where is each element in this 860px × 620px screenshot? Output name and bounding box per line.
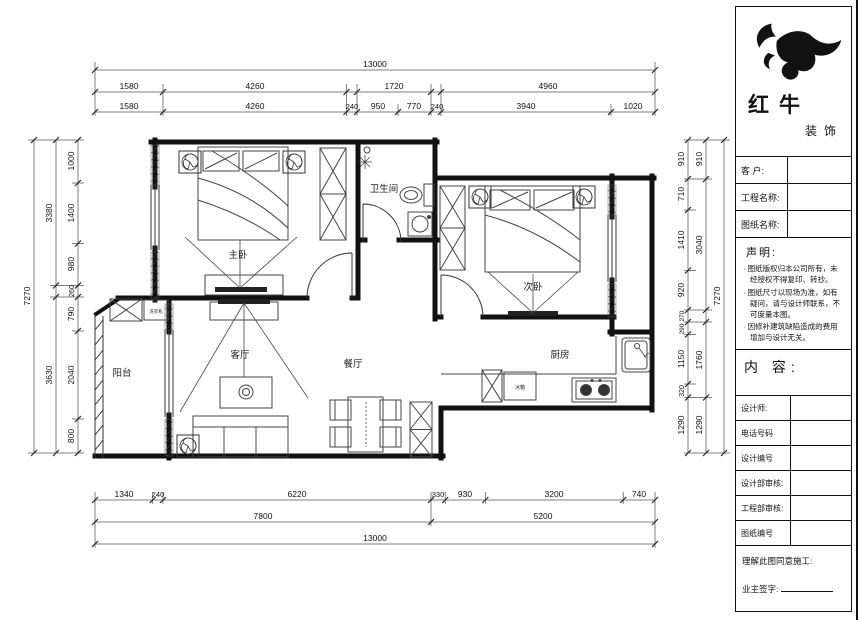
field-customer-value <box>788 157 851 183</box>
svg-text:1580: 1580 <box>120 101 139 111</box>
room-label-living: 客厅 <box>230 349 250 361</box>
sheet-right-border <box>856 0 858 620</box>
dim-top-total: 13000 <box>363 59 387 69</box>
svg-text:1580: 1580 <box>120 81 139 91</box>
field-customer-label: 客 户: <box>736 157 788 183</box>
dining-furniture <box>330 397 432 457</box>
floor-plan-canvas: 主卧 卫生间 次卧 客厅 餐厅 厨房 阳台 冰箱 洗衣机 <box>0 0 735 620</box>
statement-item: · 因修补建筑缺陷造成的费用增加与设计无关。 <box>742 322 845 344</box>
brand-logo-cell: 红牛 装饰 <box>736 7 851 157</box>
field-project-label: 工程名称: <box>736 184 788 210</box>
svg-text:3380: 3380 <box>44 203 54 222</box>
signature-line <box>781 581 833 592</box>
row-sheet-no: 图纸编号 <box>736 521 851 546</box>
row-design-review: 设计部审核: <box>736 471 851 496</box>
svg-text:800: 800 <box>66 429 76 443</box>
master-bedroom-furniture <box>179 147 346 295</box>
room-label-dining: 餐厅 <box>343 358 363 370</box>
svg-text:3630: 3630 <box>44 365 54 384</box>
dimension-labels: 13000 1580 4260 1720 4960 1580 4260 240 … <box>22 59 722 543</box>
svg-text:1340: 1340 <box>115 489 134 499</box>
dim-left-total: 7270 <box>22 286 32 305</box>
field-drawing-label: 图纸名称: <box>736 211 788 237</box>
room-label-balcony: 阳台 <box>112 367 131 379</box>
room-label-kitchen: 厨房 <box>550 349 569 361</box>
svg-text:740: 740 <box>632 489 646 499</box>
room-label-master: 主卧 <box>228 249 248 261</box>
svg-text:3940: 3940 <box>517 101 536 111</box>
living-room-furniture <box>177 299 308 457</box>
svg-text:4260: 4260 <box>246 101 265 111</box>
row-designer: 设计师: <box>736 396 851 421</box>
agreement-text: 理解此图同意施工: <box>742 555 845 567</box>
svg-text:1720: 1720 <box>385 81 404 91</box>
svg-text:320: 320 <box>679 385 686 397</box>
svg-text:1410: 1410 <box>676 230 686 249</box>
signature-block: 理解此图同意施工: 业主签字: <box>736 546 851 612</box>
svg-text:1290: 1290 <box>676 415 686 434</box>
room-label-second: 次卧 <box>523 281 543 293</box>
field-project-value <box>788 184 851 210</box>
brand-subname: 装饰 <box>736 122 851 139</box>
room-labels: 主卧 卫生间 次卧 客厅 餐厅 厨房 阳台 冰箱 洗衣机 <box>112 183 569 391</box>
content-label: 内 容: <box>736 350 851 377</box>
svg-text:7800: 7800 <box>254 511 273 521</box>
svg-text:910: 910 <box>676 152 686 166</box>
svg-text:240: 240 <box>346 102 359 111</box>
dimension-ticks <box>31 67 727 547</box>
svg-text:1290: 1290 <box>694 415 704 434</box>
svg-text:710: 710 <box>676 187 686 201</box>
svg-text:4960: 4960 <box>539 81 558 91</box>
svg-text:1760: 1760 <box>694 350 704 369</box>
svg-text:240: 240 <box>152 490 165 499</box>
kitchen-fixtures <box>441 336 650 402</box>
field-project: 工程名称: <box>736 184 851 211</box>
redbull-logo-icon <box>742 15 846 89</box>
svg-text:1020: 1020 <box>624 101 643 111</box>
title-block: 红牛 装饰 客 户: 工程名称: 图纸名称: 声明: · 图纸版权归本公司所有，… <box>735 6 852 612</box>
field-drawing-value <box>788 211 851 237</box>
svg-text:240: 240 <box>431 102 444 111</box>
svg-text:1150: 1150 <box>676 350 686 369</box>
svg-text:950: 950 <box>371 101 385 111</box>
field-customer: 客 户: <box>736 157 851 184</box>
svg-text:5200: 5200 <box>534 511 553 521</box>
svg-text:260: 260 <box>69 285 76 297</box>
svg-text:270: 270 <box>679 310 686 321</box>
dim-bottom-total: 13000 <box>363 533 387 543</box>
statement-block: 声明: · 图纸版权归本公司所有，未经授权不得复印、转抄。 · 图纸尺寸以现场为… <box>736 238 851 350</box>
appliance-label-washer: 洗衣机 <box>149 308 163 315</box>
svg-text:2040: 2040 <box>66 365 76 384</box>
svg-text:770: 770 <box>407 101 421 111</box>
svg-text:790: 790 <box>66 307 76 321</box>
dim-right-total: 7270 <box>712 286 722 305</box>
owner-signature-label: 业主签字: <box>742 581 845 595</box>
statement-heading: 声明: <box>746 244 845 260</box>
svg-text:3040: 3040 <box>694 235 704 254</box>
statement-item: · 图纸版权归本公司所有，未经授权不得复印、转抄。 <box>742 264 845 286</box>
statement-item: · 图纸尺寸以现场为准，如有疑问，请与设计师联系，不可度量本图。 <box>742 288 845 321</box>
svg-text:980: 980 <box>66 257 76 271</box>
svg-text:930: 930 <box>458 489 472 499</box>
second-bedroom-furniture <box>440 186 595 316</box>
row-engineering-review: 工程部审核: <box>736 496 851 521</box>
room-label-bath: 卫生间 <box>370 183 399 195</box>
row-phone: 电话号码 <box>736 421 851 446</box>
appliance-label-fridge: 冰箱 <box>515 384 525 391</box>
svg-text:4260: 4260 <box>246 81 265 91</box>
svg-text:1000: 1000 <box>66 151 76 170</box>
svg-text:1400: 1400 <box>66 203 76 222</box>
doors <box>307 204 483 317</box>
svg-text:3200: 3200 <box>545 489 564 499</box>
field-drawing: 图纸名称: <box>736 211 851 238</box>
svg-text:6220: 6220 <box>288 489 307 499</box>
svg-text:290: 290 <box>679 323 686 334</box>
brand-name: 红牛 <box>736 89 851 119</box>
row-design-no: 设计编号 <box>736 446 851 471</box>
drawing-sheet: 主卧 卫生间 次卧 客厅 餐厅 厨房 阳台 冰箱 洗衣机 <box>0 0 860 620</box>
content-cell: 内 容: <box>736 350 851 396</box>
svg-text:920: 920 <box>676 283 686 297</box>
svg-text:910: 910 <box>694 152 704 166</box>
svg-text:330: 330 <box>432 490 445 499</box>
